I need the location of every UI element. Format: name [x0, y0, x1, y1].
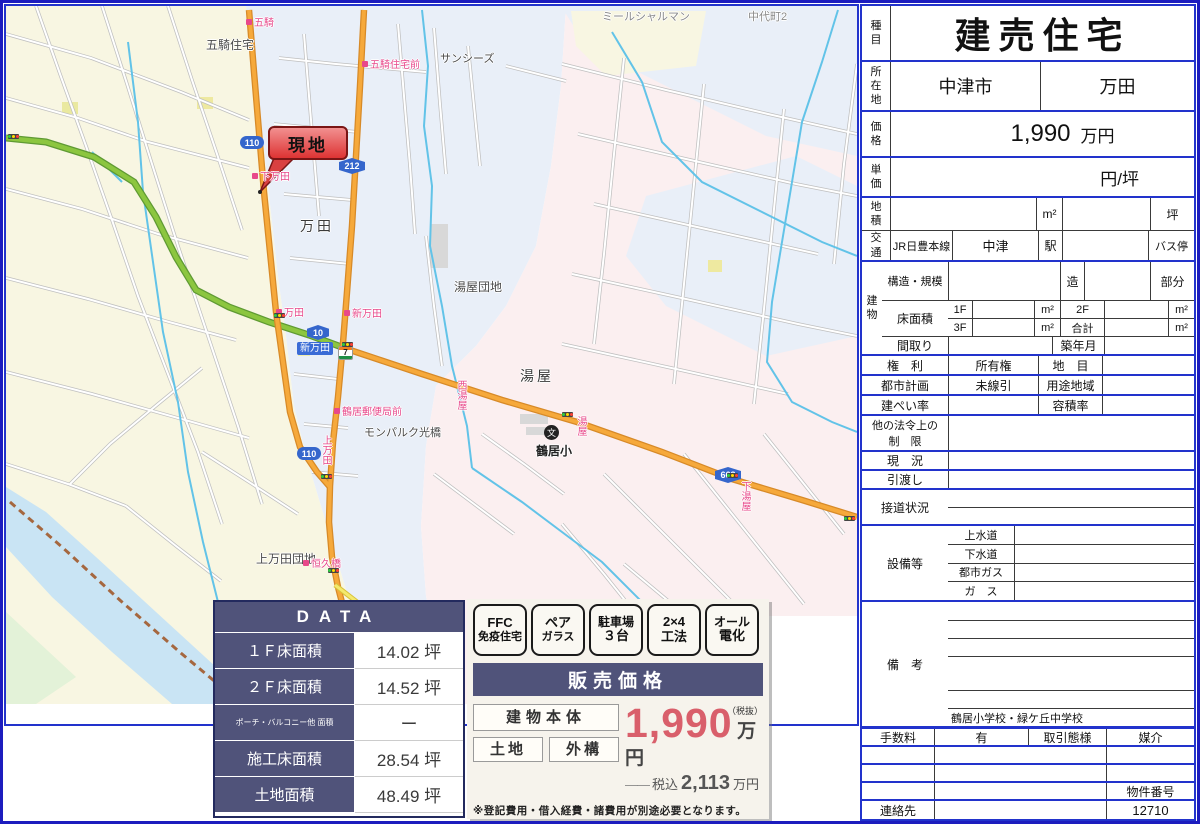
tax-included-label: 税込 — [652, 774, 678, 793]
land-area-label: 地 積 — [862, 198, 890, 230]
cell-empty — [1102, 396, 1194, 414]
feature-badges: FFC 免疫住宅 ペア ガラス 駐車場 ３台 2×4 工法 オール 電化 — [473, 604, 763, 656]
item-exterior: 外構 — [549, 737, 619, 762]
row-value: 28.54 坪 — [355, 741, 463, 777]
row-current-state: 現 況 — [862, 450, 1194, 469]
handover-label: 引渡し — [862, 471, 948, 488]
floor-2f-m2: m² — [1168, 301, 1194, 318]
seven-number: 7 — [339, 350, 352, 355]
bus-stop-icon — [344, 310, 350, 316]
seven-stripe-green — [339, 356, 352, 359]
map-label-monparc: モンパルク光橋 — [364, 424, 441, 440]
land-category-label: 地 目 — [1038, 356, 1102, 374]
map-label-manda: 万田 — [300, 216, 334, 236]
cell-empty — [1106, 747, 1194, 763]
table-row: 土地面積 48.49 坪 — [215, 777, 463, 813]
cell-empty — [948, 452, 1194, 469]
row-label: １Ｆ床面積 — [215, 633, 355, 669]
cell-empty — [948, 620, 1194, 638]
traffic-light-icon — [727, 473, 738, 478]
cell-empty — [1014, 526, 1194, 544]
far-label: 容積率 — [1038, 396, 1102, 414]
price-amount: 1,990 — [625, 704, 733, 742]
category-value: 建売住宅 — [890, 6, 1194, 60]
city-planning-label: 都市計画 — [862, 376, 948, 394]
row-schools: 鶴居小学校・緑ケ丘中学校 — [948, 708, 1194, 726]
sewer-label: 下水道 — [948, 545, 1014, 563]
station-name: 中津 — [952, 231, 1038, 260]
bus-stop-yubinkyoku-mae: 鶴居郵便局前 — [334, 403, 402, 418]
row-price: 価 格 1,990 万円 — [862, 110, 1194, 156]
route-badge-110b: 110 — [297, 447, 321, 460]
cell-empty — [1104, 319, 1168, 336]
bus-stop-goki-jutaku-mae: 五騎住宅前 — [362, 56, 420, 71]
table-row: 施工床面積 28.54 坪 — [215, 741, 463, 777]
row-floor-2: 3F m² 合計 m² — [948, 318, 1194, 336]
contact-label: 連絡先 — [862, 801, 934, 819]
map-label-nakadai: 中代町2 — [748, 8, 787, 24]
built-date-label: 築年月 — [1052, 337, 1104, 354]
cell-empty — [862, 747, 934, 763]
school-districts: 鶴居小学校・緑ケ丘中学校 — [948, 709, 1194, 726]
row-label: 土地面積 — [215, 777, 355, 813]
seven-eleven-icon: 7 — [338, 346, 353, 360]
rail-line: JR日豊本線 — [890, 231, 952, 260]
row-gas: ガ ス — [948, 581, 1194, 600]
route-badge-10: 10 — [307, 325, 329, 340]
row-land-area: 地 積 m² 坪 — [862, 196, 1194, 230]
bus-stop-label: バス停 — [1148, 231, 1194, 260]
price-value: 1,990 万円 — [890, 112, 1194, 156]
cell-empty — [1062, 198, 1150, 230]
location-town: 万田 — [1040, 62, 1194, 110]
tax-included-line: ―― 税込 2,113 万円 — [625, 772, 763, 795]
category-label: 種 目 — [862, 6, 890, 60]
tax-free-note: （税抜） — [727, 704, 763, 717]
cell-empty — [948, 262, 1060, 300]
floor-2f: 2F — [1060, 301, 1104, 318]
row-floor-area: 床面積 1F m² 2F m² 3F m² — [882, 300, 1194, 336]
row-floor-1: 1F m² 2F m² — [948, 301, 1194, 318]
cell-empty — [1084, 262, 1150, 300]
cell-empty — [862, 783, 934, 799]
cell-empty — [1014, 582, 1194, 600]
traffic-light-icon — [328, 568, 339, 573]
price-items: 建物本体 土地 外構 — [473, 704, 619, 795]
water-label: 上水道 — [948, 526, 1014, 544]
traffic-light-icon — [321, 474, 332, 479]
map-label-sunseas: サンシーズ — [440, 50, 494, 66]
cell-empty — [934, 801, 1106, 819]
row-unit-price: 単 価 円/坪 — [862, 156, 1194, 196]
use-district-label: 用途地域 — [1038, 376, 1102, 394]
bus-stop-nishi-yuya: 西湯屋 — [453, 380, 468, 410]
cell-empty — [948, 507, 1194, 525]
transaction-type-label: 取引態様 — [1028, 729, 1106, 745]
cell-empty — [948, 471, 1194, 488]
facilities-label: 設備等 — [862, 526, 948, 600]
rights-label: 権 利 — [862, 356, 948, 374]
flyer-page: ミールシャルマン 中代町2 五騎住宅 サンシーズ 万田 湯屋団地 湯屋 モンパル… — [0, 0, 1200, 824]
road-access-label: 接道状況 — [862, 490, 948, 524]
map-label-goki-jutaku: 五騎住宅 — [206, 36, 254, 53]
row-value: 14.52 坪 — [355, 669, 463, 705]
building-label: 建 物 — [862, 262, 882, 354]
route-badge-212: 212 — [339, 158, 365, 174]
section-building: 建 物 構造・規模 造 部分 床面積 1F m² — [862, 260, 1194, 354]
current-state-label: 現 況 — [862, 452, 948, 469]
commission-label: 手数料 — [862, 729, 934, 745]
cell-empty — [1014, 564, 1194, 582]
table-row: ポーチ・バルコニー他 面積 ー — [215, 705, 463, 741]
cell-empty — [934, 783, 1106, 799]
traffic-light-icon — [342, 342, 353, 347]
floor-total: 合計 — [1060, 319, 1104, 336]
bus-stop-icon — [303, 560, 309, 566]
bus-stop-shimo-yuya: 下湯屋 — [737, 481, 752, 511]
row-blank — [862, 745, 1194, 763]
city-gas-label: 都市ガス — [948, 564, 1014, 582]
cell-empty — [948, 638, 1194, 656]
item-building: 建物本体 — [473, 704, 619, 731]
bus-stop-icon — [362, 61, 368, 67]
school-icon: 文 — [544, 425, 559, 440]
data-table: DATA １Ｆ床面積 14.02 坪 ２Ｆ床面積 14.52 坪 ポーチ・バルコ… — [213, 600, 465, 818]
tax-included-price: 2,113 — [681, 772, 730, 795]
land-area-m2: m² — [1036, 198, 1062, 230]
feature-badge-2x4: 2×4 工法 — [647, 604, 701, 656]
floor-area-label: 床面積 — [882, 301, 948, 336]
row-coverage: 建ぺい率 容積率 — [862, 394, 1194, 414]
cell-empty — [948, 656, 1194, 690]
bus-stop-shin-manda: 新万田 — [344, 305, 382, 320]
layout-label: 間取り — [882, 337, 948, 354]
row-sewer: 下水道 — [948, 544, 1194, 563]
row-commission: 手数料 有 取引態様 媒介 — [862, 726, 1194, 745]
floor-3f: 3F — [948, 319, 972, 336]
row-value: 14.02 坪 — [355, 633, 463, 669]
route-badge-110: 110 — [240, 136, 264, 149]
unit-price-label: 単 価 — [862, 158, 890, 196]
floor-total-m2: m² — [1168, 319, 1194, 336]
bus-stop-icon — [334, 408, 340, 414]
structure-part: 部分 — [1150, 262, 1194, 300]
spec-table: 種 目 建売住宅 所 在 地 中津市 万田 価 格 1,990 万円 単 価 円… — [860, 4, 1196, 821]
traffic-light-icon — [8, 134, 19, 139]
location-city: 中津市 — [890, 62, 1040, 110]
cell-empty — [1104, 337, 1194, 354]
bus-stop-goki: 五騎 — [246, 14, 274, 29]
table-row: ２Ｆ床面積 14.52 坪 — [215, 669, 463, 705]
structure-zo: 造 — [1060, 262, 1084, 300]
row-label: ２Ｆ床面積 — [215, 669, 355, 705]
section-remarks: 備 考 鶴居小学校・緑ケ丘中学校 — [862, 600, 1194, 726]
cell-empty — [1014, 545, 1194, 563]
site-callout: 現地 — [268, 126, 348, 160]
price-label: 価 格 — [862, 112, 890, 156]
traffic-light-icon — [562, 412, 573, 417]
bus-stop-icon — [252, 173, 258, 179]
row-rights: 権 利 所有権 地 目 — [862, 354, 1194, 374]
cell-empty — [948, 416, 1194, 450]
gas-label: ガ ス — [948, 582, 1014, 600]
row-city-planning: 都市計画 未線引 用途地域 — [862, 374, 1194, 394]
row-handover: 引渡し — [862, 469, 1194, 488]
row-legal-limits: 他の法令上の 制 限 — [862, 414, 1194, 450]
feature-badge-all-electric: オール 電化 — [705, 604, 759, 656]
coverage-label: 建ぺい率 — [862, 396, 948, 414]
price-panel: FFC 免疫住宅 ペア ガラス 駐車場 ３台 2×4 工法 オール 電化 販売価… — [467, 599, 769, 819]
price-body: 建物本体 土地 外構 1,990 万円 （税抜） ―― 税込 2,113 万円 — [473, 704, 763, 795]
station-suffix: 駅 — [1038, 231, 1062, 260]
row-label: 施工床面積 — [215, 741, 355, 777]
bus-stop-shimomanda: 下万田 — [252, 168, 290, 183]
transport-label: 交 通 — [862, 231, 890, 260]
row-label: ポーチ・バルコニー他 面積 — [215, 705, 355, 741]
property-number-label: 物件番号 — [1106, 783, 1194, 799]
sales-price-header: 販売価格 — [473, 663, 763, 696]
cell-empty — [948, 602, 1194, 620]
cell-empty — [972, 301, 1034, 318]
structure-label: 構造・規模 — [882, 262, 948, 300]
row-road-access: 接道状況 — [862, 488, 1194, 524]
row-structure: 構造・規模 造 部分 — [882, 262, 1194, 300]
floor-1f: 1F — [948, 301, 972, 318]
cell-empty — [948, 690, 1194, 708]
row-city-gas: 都市ガス — [948, 563, 1194, 582]
cell-empty — [948, 490, 1194, 507]
data-table-header: DATA — [215, 602, 463, 633]
table-row: １Ｆ床面積 14.02 坪 — [215, 633, 463, 669]
traffic-light-icon — [844, 516, 855, 521]
cell-empty — [1106, 765, 1194, 781]
row-water: 上水道 — [948, 526, 1194, 544]
map-label-mille: ミールシャルマン — [602, 8, 690, 24]
row-transport: 交 通 JR日豊本線 中津 駅 バス停 — [862, 230, 1194, 260]
row-blank — [862, 763, 1194, 781]
transaction-type-value: 媒介 — [1106, 729, 1194, 745]
map-label-yuya: 湯屋 — [520, 366, 554, 386]
cell-empty — [948, 396, 1038, 414]
feature-badge-parking: 駐車場 ３台 — [589, 604, 643, 656]
floor-1f-m2: m² — [1034, 301, 1060, 318]
rights-value: 所有権 — [948, 356, 1038, 374]
row-location: 所 在 地 中津市 万田 — [862, 60, 1194, 110]
section-facilities: 設備等 上水道 下水道 都市ガス ガ ス — [862, 524, 1194, 600]
cell-empty — [1102, 376, 1194, 394]
intersection-label-shin-manda: 新万田 — [297, 342, 333, 355]
feature-badge-ffc: FFC 免疫住宅 — [473, 604, 527, 656]
map-label-tsurui-elementary: 鶴居小 — [536, 442, 572, 459]
cell-empty — [1062, 231, 1148, 260]
city-planning-value: 未線引 — [948, 376, 1038, 394]
price-display: 1,990 万円 （税抜） ―― 税込 2,113 万円 — [619, 704, 763, 795]
cell-empty — [1104, 301, 1168, 318]
row-category: 種 目 建売住宅 — [862, 6, 1194, 60]
cell-empty — [1102, 356, 1194, 374]
cell-empty — [934, 747, 1106, 763]
item-land: 土地 — [473, 737, 543, 762]
cell-empty — [890, 198, 1036, 230]
land-area-tsubo: 坪 — [1150, 198, 1194, 230]
bus-stop-icon — [246, 19, 252, 25]
location-label: 所 在 地 — [862, 62, 890, 110]
property-number-value: 12710 — [1106, 801, 1194, 819]
cell-empty — [934, 765, 1106, 781]
row-value: 48.49 坪 — [355, 777, 463, 813]
row-value: ー — [355, 705, 463, 741]
commission-value: 有 — [934, 729, 1028, 745]
bus-stop-yuya: 湯屋 — [573, 416, 588, 436]
row-contact: 連絡先 12710 — [862, 799, 1194, 819]
cell-empty — [948, 337, 1052, 354]
feature-badge-pair-glass: ペア ガラス — [531, 604, 585, 656]
price-note: ※登記費用・借入経費・諸費用が別途必要となります。 — [473, 803, 763, 818]
cell-empty — [862, 765, 934, 781]
map-label-yuya-danchi: 湯屋団地 — [454, 278, 502, 295]
row-layout: 間取り 築年月 — [882, 336, 1194, 354]
floor-3f-m2: m² — [1034, 319, 1060, 336]
unit-price-value: 円/坪 — [890, 158, 1194, 196]
traffic-light-icon — [274, 313, 285, 318]
legal-limits-label: 他の法令上の 制 限 — [862, 416, 948, 450]
tax-included-unit: 万円 — [733, 774, 759, 793]
remarks-label: 備 考 — [862, 602, 948, 726]
row-property-number: 物件番号 — [862, 781, 1194, 799]
cell-empty — [972, 319, 1034, 336]
